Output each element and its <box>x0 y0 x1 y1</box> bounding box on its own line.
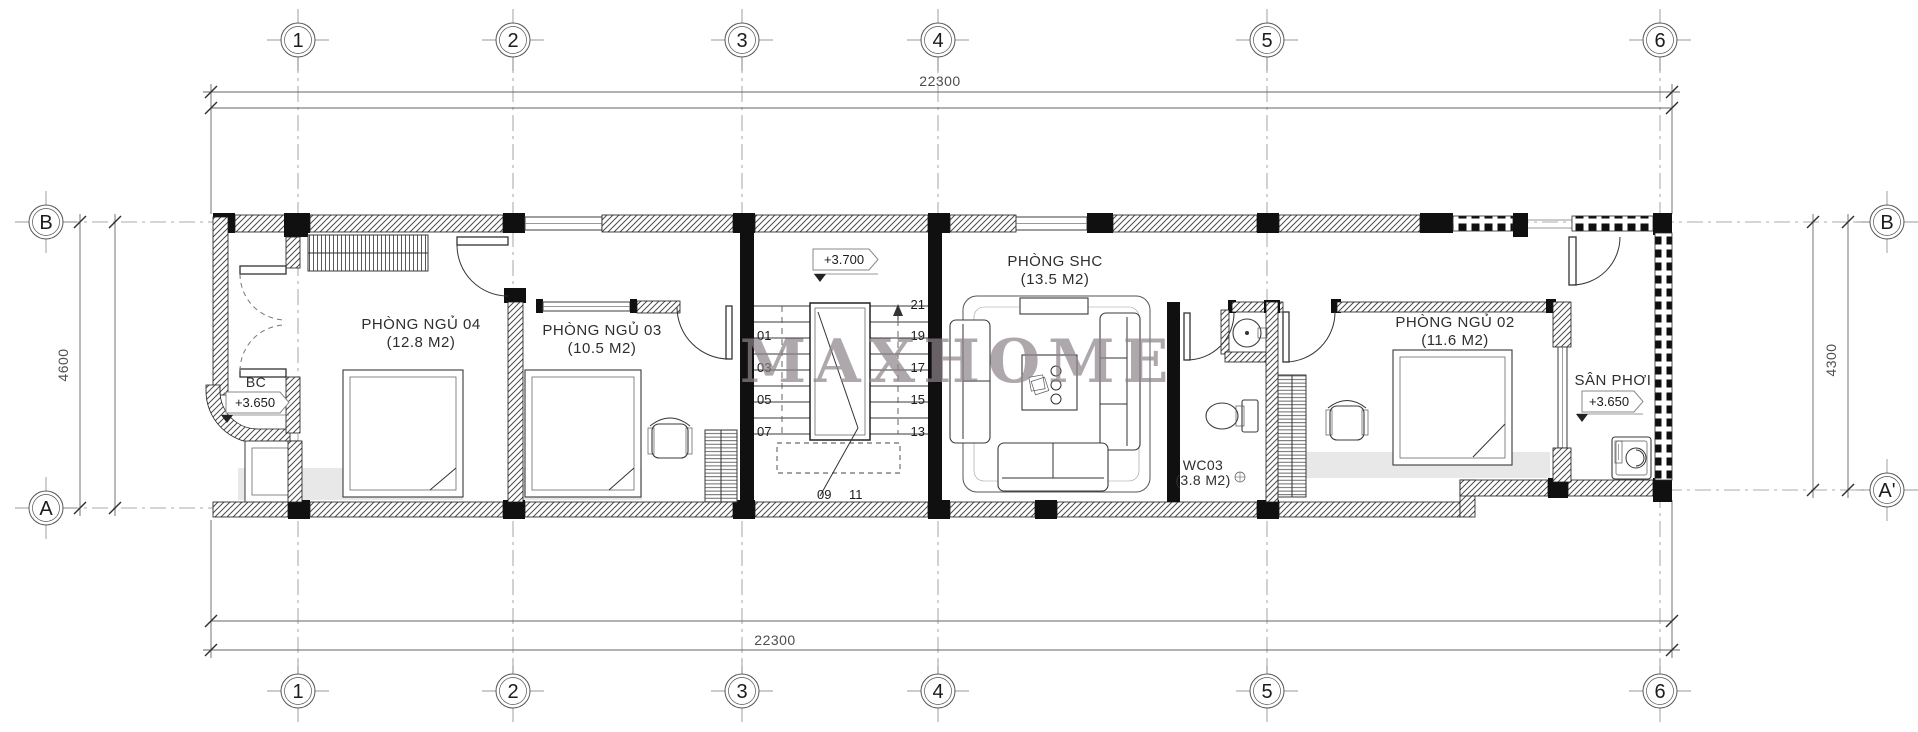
area-bedroom3: (10.5 M2) <box>568 340 637 357</box>
door-leaf-balcony-top <box>240 266 286 274</box>
level-marker-stair: +3.700 <box>813 249 878 282</box>
grid-top-3: 3 <box>736 30 747 52</box>
dim-left: 4600 <box>55 348 71 381</box>
door-leaf-bedroom4 <box>457 237 508 245</box>
dim-top: 22300 <box>919 73 960 89</box>
grid-top-5: 5 <box>1261 30 1272 52</box>
grid-top-1: 1 <box>292 30 303 52</box>
area-family-room: (13.5 M2) <box>1021 271 1090 288</box>
area-bedroom4: (12.8 M2) <box>387 334 456 351</box>
area-wc: (3.8 M2) <box>1175 472 1230 488</box>
label-laundry: SÂN PHƠI <box>1575 372 1652 389</box>
grid-right-A2: A' <box>1878 480 1895 502</box>
door-leaf-wc <box>1184 313 1190 360</box>
grid-top-2: 2 <box>507 30 518 52</box>
svg-text:+3.650: +3.650 <box>235 395 275 410</box>
label-bedroom3: PHÒNG NGỦ 03 <box>542 321 661 339</box>
grid-bottom-1: 1 <box>292 681 303 703</box>
stair-num-13: 13 <box>911 424 925 439</box>
stair-landing <box>777 443 900 473</box>
floor-plan-page: 22300 22300 4600 4300 1 2 3 4 5 6 1 2 3 … <box>0 0 1918 727</box>
wardrobe-bedroom4 <box>308 235 428 271</box>
bed-bedroom2 <box>1393 350 1512 465</box>
grid-bottom-4: 4 <box>932 681 943 703</box>
floor-drain-wc <box>1235 472 1245 482</box>
wardrobe-bedroom2 <box>1278 375 1306 497</box>
grid-bottom-2: 2 <box>507 681 518 703</box>
bed-bedroom4 <box>343 370 463 497</box>
watermark-logo: MAXHOME <box>740 327 1177 397</box>
level-marker-laundry: +3.650 <box>1576 391 1643 422</box>
washing-machine <box>1612 437 1651 479</box>
label-bedroom2: PHÒNG NGỦ 02 <box>1395 313 1514 331</box>
grid-left-B: B <box>39 212 52 234</box>
grid-top-6: 6 <box>1654 30 1665 52</box>
door-leaf-laundry <box>1569 237 1576 285</box>
stair-num-11: 11 <box>849 487 863 502</box>
chair-bedroom3 <box>648 418 692 458</box>
door-leaf-bedroom2 <box>1283 312 1289 362</box>
stair-num-09: 09 <box>817 487 831 502</box>
svg-text:+3.650: +3.650 <box>1589 394 1629 409</box>
dim-right: 4300 <box>1823 343 1839 376</box>
area-bedroom2: (11.6 M2) <box>1421 332 1489 349</box>
bed-bedroom3 <box>525 370 641 497</box>
sink-wc <box>1233 319 1267 347</box>
floor-plan-drawing: 22300 22300 4600 4300 1 2 3 4 5 6 1 2 3 … <box>0 0 1918 727</box>
shelf-bedroom3 <box>705 430 737 502</box>
grid-bottom-3: 3 <box>736 681 747 703</box>
grid-top-4: 4 <box>932 30 943 52</box>
grid-bottom-6: 6 <box>1654 681 1665 703</box>
grid-left-A: A <box>39 498 53 520</box>
door-leaf-bedroom3 <box>726 306 732 359</box>
label-wc: WC03 <box>1183 457 1224 473</box>
grid-right-B: B <box>1880 212 1893 234</box>
stair-num-21: 21 <box>911 297 925 312</box>
label-family-room: PHÒNG SHC <box>1007 253 1102 270</box>
dim-bottom: 22300 <box>754 632 795 648</box>
svg-text:+3.700: +3.700 <box>824 252 864 267</box>
chair-bedroom2 <box>1326 401 1368 441</box>
label-bedroom4: PHÒNG NGỦ 04 <box>361 315 480 333</box>
toilet-wc <box>1206 400 1258 432</box>
label-balcony: BC <box>246 374 266 390</box>
grid-bottom-5: 5 <box>1261 681 1272 703</box>
stair-num-07: 07 <box>757 424 771 439</box>
